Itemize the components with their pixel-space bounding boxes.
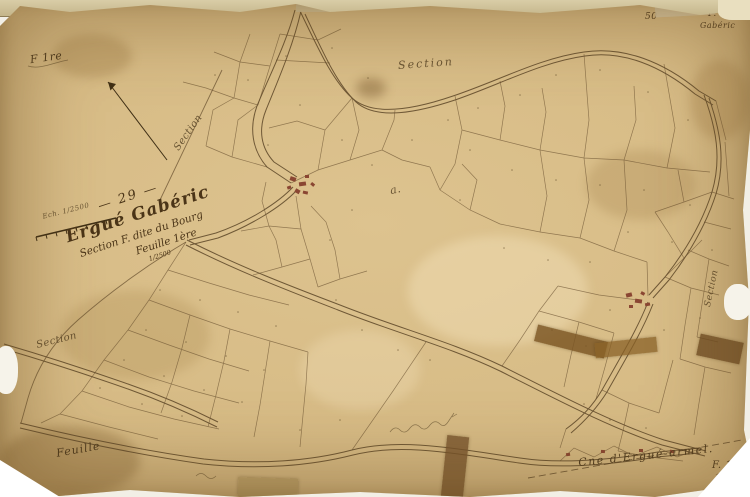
map-paper: F 1re 50 F. 1 Gabéric Section Section Se… <box>0 0 750 497</box>
cadastral-map-sheet: F 1re 50 F. 1 Gabéric Section Section Se… <box>0 0 750 497</box>
letter-a-annotation: a. <box>389 183 402 196</box>
number-top-right: 50 <box>645 13 657 22</box>
sheet-mark-bottom-right: F. 1 <box>712 461 732 471</box>
hamlet-buildings <box>287 175 674 456</box>
meridian-line <box>108 82 167 160</box>
name-top-right: Gabéric <box>700 22 735 30</box>
